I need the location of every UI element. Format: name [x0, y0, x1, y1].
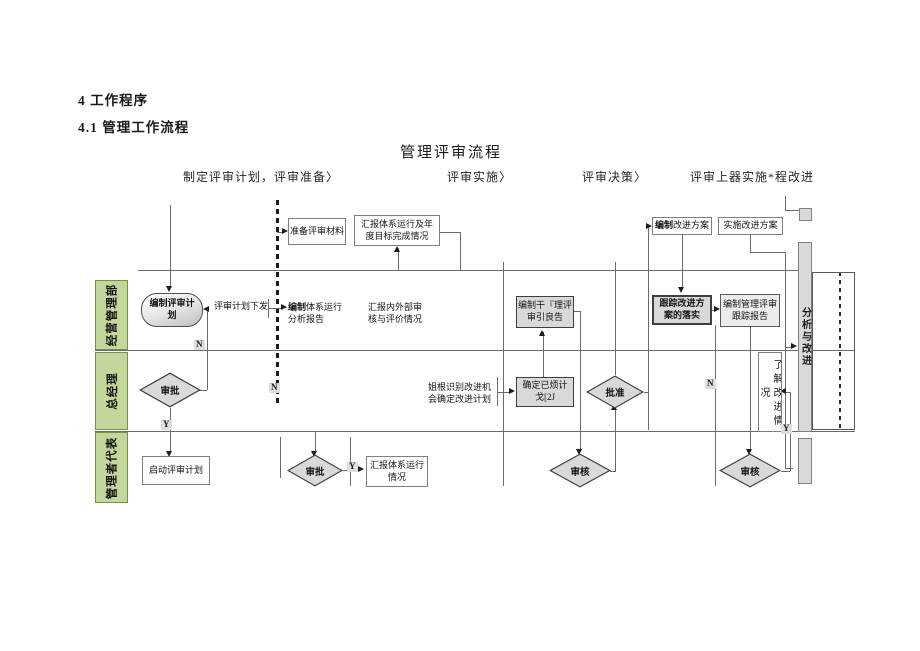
- analyze-bar-top: [799, 208, 812, 221]
- phase-header-plan: 制定评审计划，评审准备〉: [183, 168, 339, 185]
- lane-operations-dept: 经营管理部: [95, 280, 128, 350]
- decision-label: 审核: [740, 464, 759, 478]
- lane-boundary-top: [138, 270, 798, 271]
- connector: [543, 332, 544, 377]
- branch-y: Y: [347, 462, 358, 472]
- branch-y: Y: [161, 420, 172, 430]
- connector-n-loop: [207, 310, 208, 390]
- node-review-report: 编制干『理评 审引良告: [516, 296, 574, 328]
- connector: [750, 234, 751, 252]
- decision-check-2: 审核: [719, 453, 781, 488]
- connector: [440, 232, 461, 233]
- node-track-report: 编制管理评审 跟踪报告: [720, 294, 780, 327]
- lane-label: 总经理: [104, 372, 120, 410]
- branch-n: N: [269, 383, 280, 393]
- arrow-right: [791, 343, 797, 349]
- connector: [781, 471, 790, 472]
- connector: [280, 437, 281, 478]
- connector: [580, 311, 581, 451]
- node-understand-improve: 了解改进情况: [758, 352, 782, 432]
- connector: [785, 433, 786, 468]
- node-label: 改进方案: [673, 220, 709, 232]
- subsection-heading: 4.1 管理工作流程: [78, 116, 189, 136]
- connector: [315, 432, 316, 453]
- connector: [682, 234, 683, 289]
- connector: [785, 468, 793, 469]
- decision-approve-gm: 审批: [139, 372, 201, 408]
- decision-approve-rep: 审批: [287, 454, 343, 487]
- node-report-annual: 汇报体系运行及年 度目标完成情况: [354, 215, 440, 246]
- arrow-up: [394, 246, 400, 252]
- node-confirm-improve-plan: 确定已烦计 戈[2J: [516, 377, 574, 407]
- lane-general-manager: 总经理: [95, 352, 128, 430]
- connector: [615, 410, 616, 471]
- analyze-bar-bottom: [798, 438, 812, 484]
- node-start-plan: 启动评审计划: [142, 456, 210, 485]
- node-make-review-plan: 编制评审计 划: [141, 293, 203, 327]
- node-prepare-materials: 准备评审材料: [288, 218, 346, 245]
- connector: [750, 327, 751, 451]
- node-track-implementation: 跟踪改进方 案的落实: [652, 295, 712, 325]
- connector: [785, 196, 786, 210]
- lane-boundary-mid: [95, 350, 855, 351]
- arrow-up: [539, 330, 545, 336]
- decision-label: 审批: [160, 383, 179, 397]
- phase-divider-dashed: [276, 200, 279, 405]
- connector: [648, 227, 649, 430]
- arrow-right: [281, 304, 287, 310]
- section-heading: 4 工作程序: [78, 89, 148, 109]
- decision-check-1: 审核: [549, 453, 611, 488]
- branch-n: N: [194, 340, 205, 350]
- connector: [460, 232, 461, 270]
- connector: [615, 262, 616, 375]
- document-page: 4 工作程序 4.1 管理工作流程 管理评审流程 制定评审计划，评审准备〉 评审…: [0, 0, 920, 651]
- decision-label: 审核: [570, 464, 589, 478]
- node-make-improve-plan: 编制改进方案: [652, 217, 712, 235]
- lane-management-rep: 管理者代表: [95, 432, 128, 503]
- connector: [170, 205, 171, 288]
- phase-header-decide: 评审决策〉: [582, 168, 647, 185]
- arrow-down: [166, 286, 172, 292]
- decision-label: 批准: [605, 385, 624, 399]
- node-label-bold: 编制: [655, 220, 673, 232]
- label-plan-issue: 评审计划下发: [214, 300, 268, 312]
- arrow-right: [358, 466, 364, 472]
- node-report-status: 汇报体系运行 情况: [366, 456, 428, 487]
- arrow-left: [203, 306, 209, 312]
- arrow-down: [678, 287, 684, 293]
- phase-header-improve: 评审上器实施*程改进: [690, 168, 814, 185]
- branch-n: N: [705, 379, 716, 389]
- lane-label: 管理者代表: [104, 436, 120, 499]
- label-report-audit: 汇报内外部审 核与评价情况: [368, 301, 426, 325]
- branch-y: Y: [781, 424, 792, 434]
- phase-header-implement: 评审实施〉: [447, 168, 512, 185]
- flowchart-title: 管理评审流程: [400, 141, 502, 162]
- connector: [644, 392, 649, 393]
- node-implement-improve: 实施改进方案: [718, 217, 783, 235]
- label-identify-improve: 姐根识别改进机 会确定改进计划: [428, 381, 496, 405]
- analyze-improve-bar: 分析与改进: [798, 242, 812, 432]
- decision-label: 审批: [305, 464, 324, 478]
- connector: [715, 325, 716, 486]
- label-bold: 编制: [288, 302, 306, 312]
- arrow-right: [509, 388, 515, 394]
- connector: [170, 408, 171, 453]
- decision-approve-final: 批准: [586, 375, 644, 409]
- lane-boundary-bottom: [95, 431, 855, 432]
- connector: [785, 252, 786, 430]
- label-make-system-report: 编制体系运行 分析报告: [288, 301, 346, 325]
- lane-label: 经营管理部: [104, 284, 120, 347]
- connector: [574, 311, 581, 312]
- connector: [750, 252, 786, 253]
- connector: [786, 392, 791, 393]
- right-frame: [812, 272, 855, 430]
- connector: [503, 262, 504, 486]
